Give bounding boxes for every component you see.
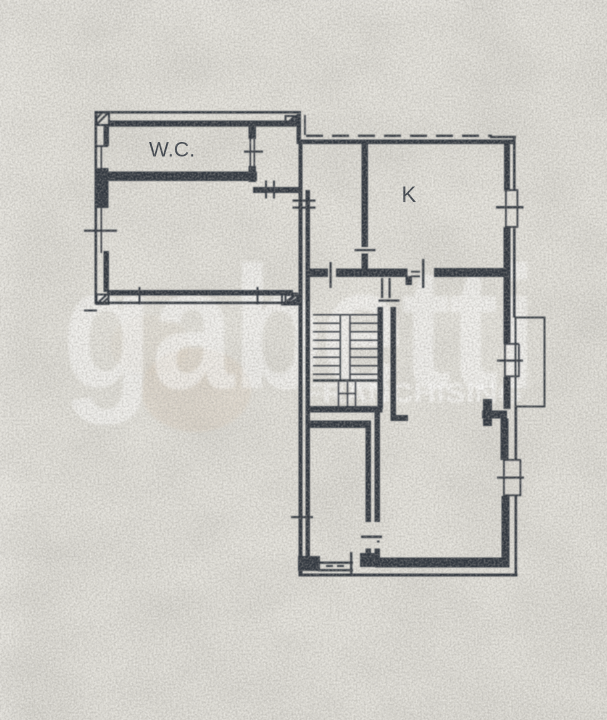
svg-text:K: K [402,182,417,207]
svg-text:W.C.: W.C. [149,139,195,162]
